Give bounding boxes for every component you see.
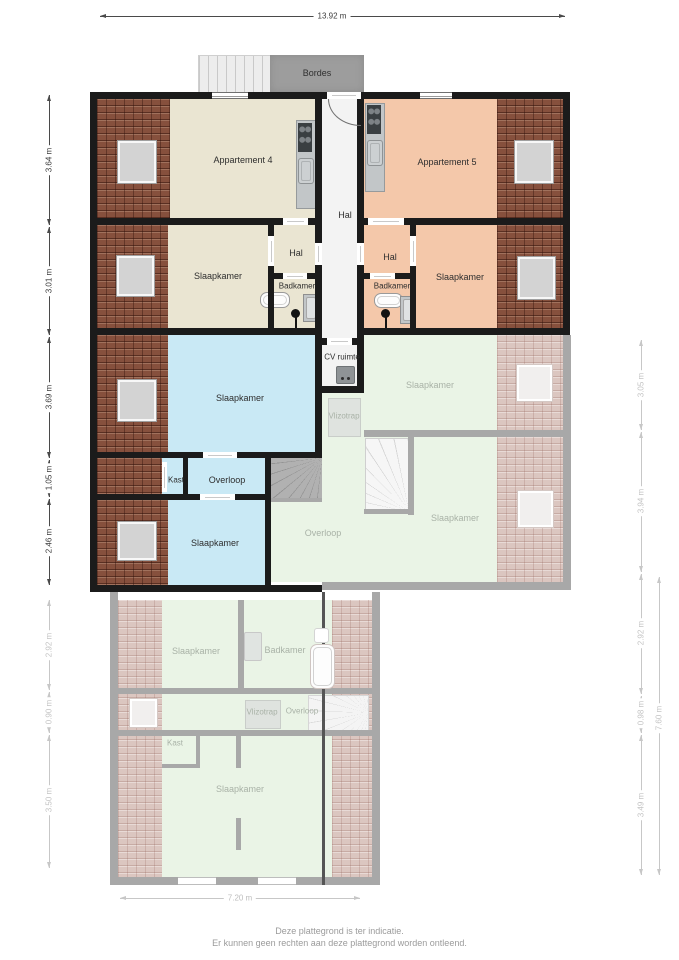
wall (364, 328, 563, 335)
toilet-icon (291, 309, 300, 318)
dim-label-left-3: 3.69 m (45, 382, 54, 412)
door-opening (368, 218, 404, 225)
door-opening (327, 338, 352, 345)
room-label-badkamer-left: Badkamer (279, 282, 315, 291)
room-label-slaapkamer-right: Slaapkamer (436, 272, 484, 282)
roof-strip-faded (118, 600, 162, 877)
room-label-vlizotrap-lower: Vlizotrap (246, 708, 277, 717)
room-label-hal-right: Hal (383, 252, 397, 262)
stove-icon (298, 123, 312, 152)
toilet-icon (381, 309, 390, 318)
room-label-badkamer-right: Badkamer (374, 282, 410, 291)
wall (315, 393, 322, 458)
disclaimer-line1: Deze plattegrond is ter indicatie. (0, 926, 679, 936)
dim-label-left-4: 1.05 m (45, 463, 54, 493)
room-label-hal-left: Hal (289, 248, 303, 258)
door-opening (203, 452, 237, 458)
room-label-overloop-faded: Overloop (305, 528, 342, 538)
door-opening (410, 236, 416, 266)
wall-faded (110, 877, 380, 885)
sink-icon (298, 158, 314, 184)
dim-label-right-total: 7.60 m (655, 703, 664, 733)
faded-overloop-floor (271, 498, 322, 582)
window-faded (258, 877, 296, 885)
wall (563, 92, 570, 335)
disclaimer-line2: Er kunnen geen rechten aan deze plattegr… (0, 938, 679, 948)
wall (90, 585, 322, 592)
wall-faded (322, 582, 571, 590)
door-opening (315, 243, 322, 265)
sink-faded-icon (244, 632, 262, 661)
room-label-slaapkamer-faded-2: Slaapkamer (431, 513, 479, 523)
wall-faded (196, 736, 200, 766)
dim-label-right-2: 3.94 m (637, 486, 646, 516)
skylight (118, 380, 156, 421)
wall-faded (271, 498, 322, 502)
dim-label-left-5: 2.46 m (45, 526, 54, 556)
dim-label-top: 13.92 m (314, 12, 351, 21)
wall (97, 328, 315, 335)
dim-label-left-1: 3.64 m (45, 145, 54, 175)
skylight-faded (518, 491, 553, 527)
window-faded (178, 877, 216, 885)
bathtub-icon (260, 292, 290, 308)
wall-faded (364, 430, 563, 437)
door-opening (283, 218, 308, 225)
floor-plan: Bordes (0, 0, 679, 960)
room-label-kast-faded: Kast (167, 739, 183, 748)
roof-strip (97, 458, 162, 494)
entry-stairs (198, 55, 271, 94)
toilet-faded-icon (314, 628, 329, 643)
dim-label-right-5: 3.49 m (637, 790, 646, 820)
dim-label-right-4: 0.98 m (637, 698, 646, 728)
internal-stairs (271, 458, 322, 498)
wall-faded (408, 437, 414, 515)
roof-strip-faded (332, 600, 372, 877)
door-opening (357, 243, 364, 265)
room-label-hal-center: Hal (338, 210, 352, 220)
stove-icon (367, 105, 381, 134)
bathtub-faded-icon (310, 644, 335, 689)
wall-faded (236, 736, 241, 768)
sink-icon (367, 140, 383, 166)
dim-label-left-faded-3: 3.50 m (45, 785, 54, 815)
window (420, 92, 452, 99)
room-label-slaapkamer-faded-1: Slaapkamer (406, 380, 454, 390)
room-label-apartment4: Appartement 4 (213, 155, 272, 165)
wall-faded (236, 818, 241, 850)
boiler-icon (336, 366, 355, 384)
skylight-faded (517, 365, 552, 401)
door-opening (370, 273, 395, 279)
dim-label-left-faded-2: 0.90 m (45, 697, 54, 727)
door-opening (268, 236, 274, 266)
window (212, 92, 248, 99)
door-opening (283, 273, 307, 279)
room-label-badkamer-faded: Badkamer (264, 645, 305, 655)
dim-label-right-3: 2.92 m (637, 618, 646, 648)
entrance-door-opening (327, 92, 361, 99)
bathtub-icon (374, 293, 403, 308)
wall (90, 92, 97, 592)
wall-faded (118, 730, 372, 736)
room-label-slaapkamer-faded-4: Slaapkamer (216, 784, 264, 794)
faded-winder-stairs (365, 438, 410, 513)
room-label-apartment5: Appartement 5 (417, 157, 476, 167)
wall (265, 500, 271, 585)
room-label-overloop-lower: Overloop (286, 707, 318, 716)
wall-faded (118, 688, 372, 694)
wall (315, 386, 364, 393)
closet-door-opening (162, 462, 167, 492)
skylight (515, 141, 553, 183)
skylight (117, 256, 154, 296)
wall-faded (110, 592, 118, 885)
wall (97, 494, 271, 500)
wall-faded (364, 509, 414, 514)
dim-label-right-1: 3.05 m (637, 370, 646, 400)
room-label-slaapkamer-faded-3: Slaapkamer (172, 646, 220, 656)
central-hall-floor (322, 99, 357, 345)
room-label-slaapkamer-blue: Slaapkamer (216, 393, 264, 403)
room-label-cv-ruimte: CV ruimte (324, 353, 360, 362)
dim-label-left-faded-1: 2.92 m (45, 630, 54, 660)
skylight (118, 522, 156, 560)
room-label-overloop: Overloop (209, 475, 246, 485)
wall-faded (162, 764, 200, 768)
room-label-slaapkamer-left: Slaapkamer (194, 271, 242, 281)
bordes-label: Bordes (303, 68, 332, 78)
wall-faded (563, 335, 571, 590)
door-opening (200, 494, 235, 500)
skylight-faded (130, 699, 157, 727)
room-label-vlizotrap-upper: Vlizotrap (328, 412, 359, 421)
dim-label-bottom: 7.20 m (224, 894, 256, 903)
room-label-kast: Kast (168, 476, 184, 485)
room-label-slaapkamer-blue-bottom: Slaapkamer (191, 538, 239, 548)
dim-label-left-2: 3.01 m (45, 266, 54, 296)
skylight (518, 257, 555, 299)
skylight (118, 141, 156, 183)
wall-faded (372, 592, 380, 885)
